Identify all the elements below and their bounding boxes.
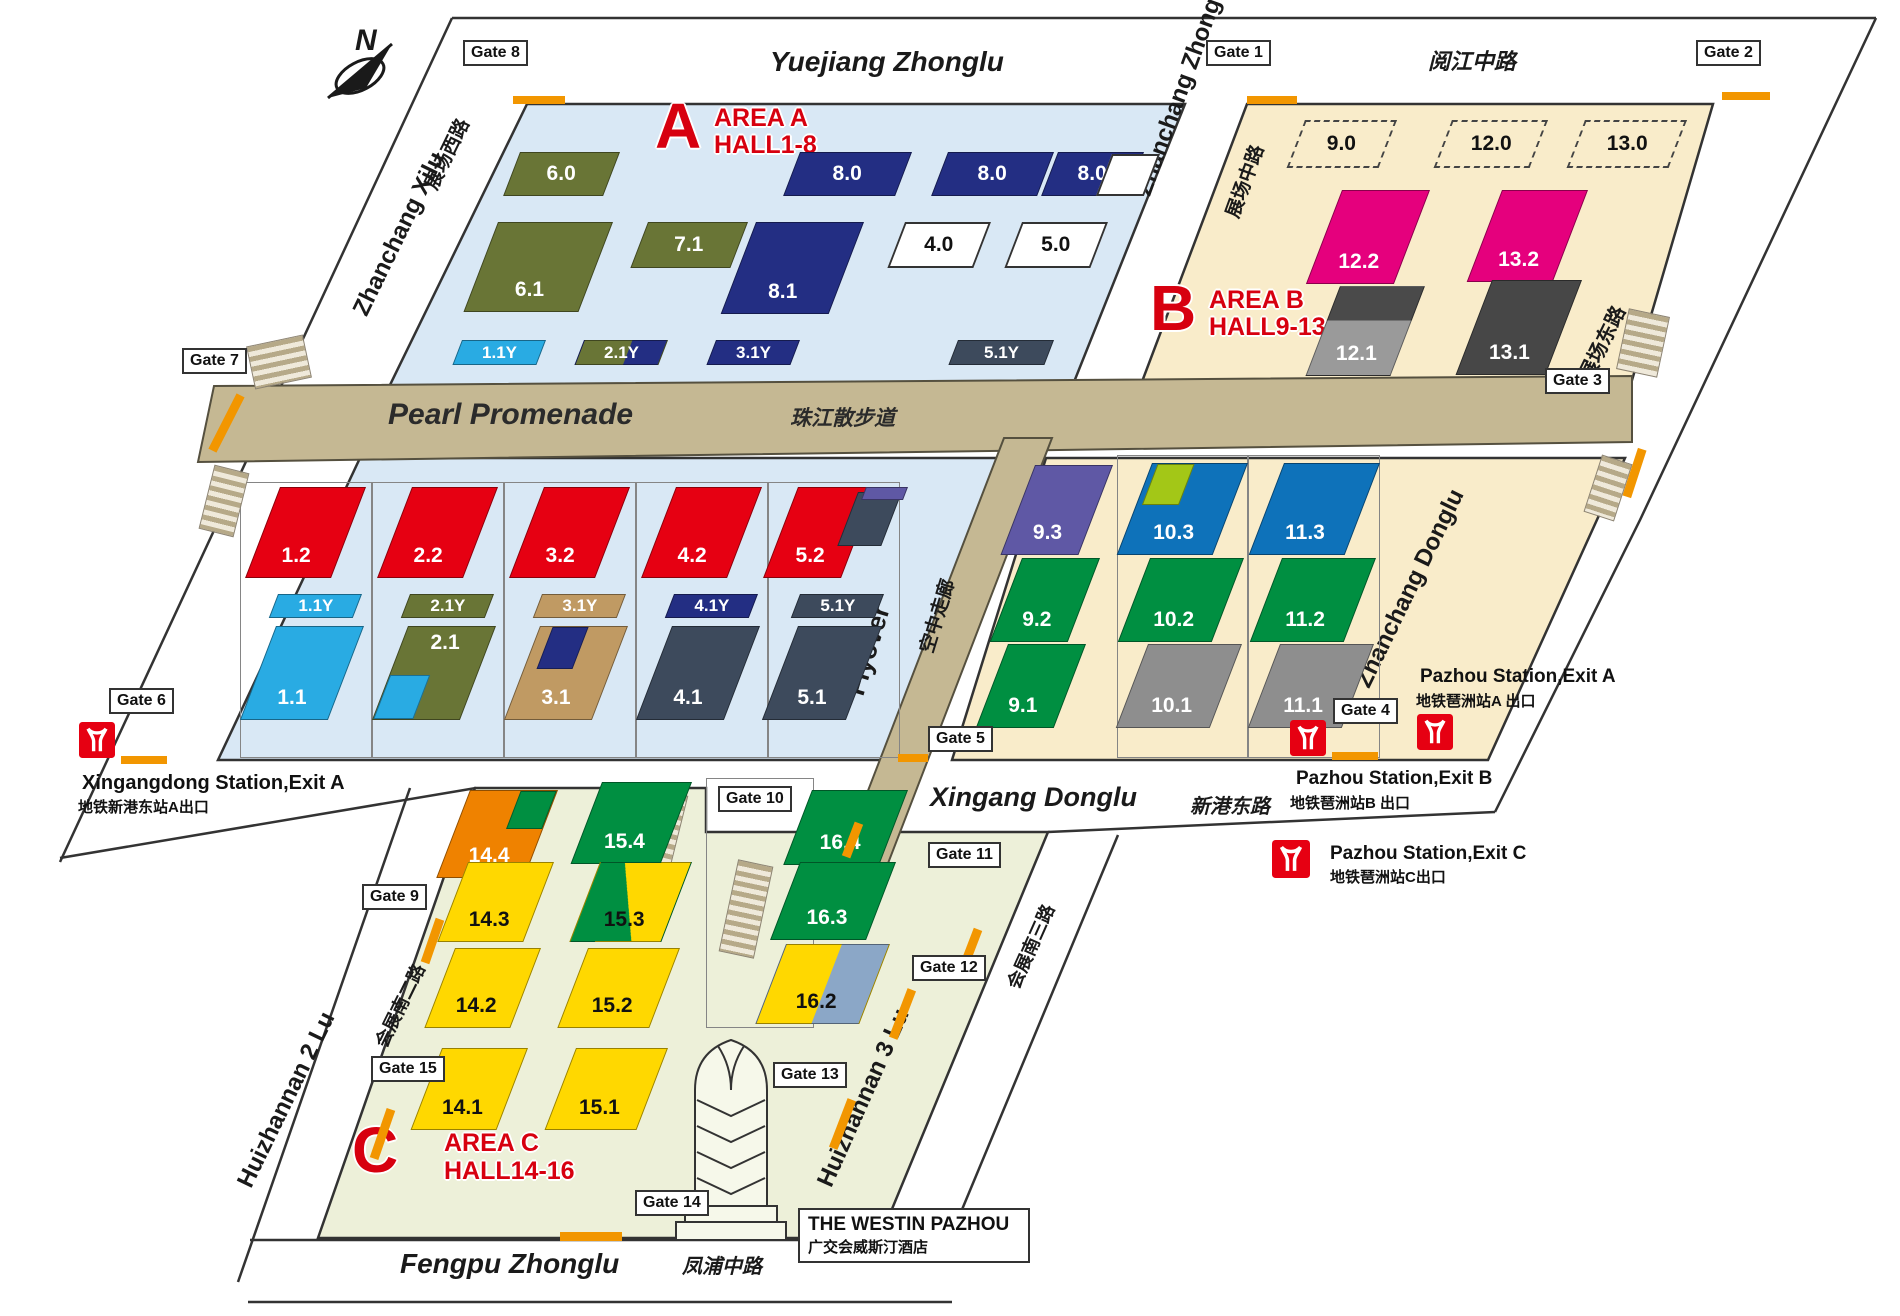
hall-3.1-label: 3.1	[542, 686, 571, 710]
gate-6-label: Gate 6	[117, 692, 166, 710]
gate-13-callout[interactable]: Gate 13	[773, 1062, 847, 1088]
gate-10-callout[interactable]: Gate 10	[718, 786, 792, 812]
hall-8.0-label: 8.0	[978, 162, 1007, 186]
hall-1.1Y-label: 1.1Y	[298, 596, 333, 616]
westin-hotel-callout[interactable]: THE WESTIN PAZHOU 广交会威斯汀酒店	[798, 1208, 1030, 1263]
hall-8.1-label: 8.1	[769, 280, 798, 304]
westin-hotel-name-zh: 广交会威斯汀酒店	[808, 1236, 1020, 1257]
hall-15.2-label: 15.2	[591, 994, 632, 1018]
hall-12.0[interactable]: 12.0	[1434, 120, 1548, 168]
hall-11.2-label: 11.2	[1285, 608, 1325, 632]
hall-16.2-label: 16.2	[795, 990, 836, 1014]
hall-5.1-label: 5.1	[798, 686, 827, 710]
hall-16.3-label: 16.3	[806, 906, 847, 930]
hall-10.2-label: 10.2	[1153, 608, 1194, 632]
gate-15-label: Gate 15	[379, 1060, 437, 1078]
hall-2.1-label: 2.1	[431, 631, 460, 655]
hall-1.1Y-label: 1.1Y	[482, 343, 517, 363]
promenade-label-zh: 珠江散步道	[790, 402, 895, 432]
hall-4.1Y-label: 4.1Y	[694, 596, 729, 616]
hall-3.1Y-label: 3.1Y	[562, 596, 597, 616]
hall-15.4-label: 15.4	[604, 830, 645, 854]
gate-1-callout[interactable]: Gate 1	[1206, 40, 1271, 66]
metro-icon-xingangdong-exit-a[interactable]	[79, 722, 115, 763]
hall-6.0-label: 6.0	[547, 162, 576, 186]
gate-14-callout[interactable]: Gate 14	[635, 1190, 709, 1216]
promenade-label: Pearl Promenade	[388, 398, 633, 432]
gate-4-marker[interactable]	[1332, 752, 1378, 760]
gate-9-label: Gate 9	[370, 888, 419, 906]
hall-9.2-label: 9.2	[1023, 608, 1052, 632]
hall-15.3-label: 15.3	[603, 908, 644, 932]
gate-1-label: Gate 1	[1214, 44, 1263, 62]
gate-5-label: Gate 5	[936, 730, 985, 748]
pazhou-exit-b-label: Pazhou Station,Exit B	[1296, 768, 1492, 790]
compass-north-label: N	[355, 24, 377, 58]
gate-1-marker[interactable]	[1247, 96, 1297, 104]
metro-icon-pazhou-exit-a[interactable]	[1417, 714, 1453, 755]
gate-6-callout[interactable]: Gate 6	[109, 688, 174, 714]
pazhou-exit-a-label: Pazhou Station,Exit A	[1420, 666, 1616, 688]
gate-3-callout[interactable]: Gate 3	[1545, 368, 1610, 394]
canton-fair-complex-map: N Yuejiang Zhonglu 阅江中路 Zhanchang Xilu 展…	[0, 0, 1900, 1316]
pazhou-exit-c-label: Pazhou Station,Exit C	[1330, 843, 1526, 865]
area-a-line1: AREA A	[714, 105, 808, 132]
area-b-line2: HALL9-13	[1209, 314, 1326, 341]
hall-5.1Y-label: 5.1Y	[820, 596, 855, 616]
area-c-line2: HALL14-16	[444, 1158, 575, 1185]
pazhou-exit-a-label-zh: 地铁琶洲站A 出口	[1416, 690, 1535, 711]
gate-11-callout[interactable]: Gate 11	[928, 842, 1001, 868]
hall-5.2-purple-piece	[861, 487, 908, 500]
gate-14-marker[interactable]	[560, 1232, 622, 1241]
hall-11.1-label: 11.1	[1283, 694, 1323, 718]
pazhou-exit-b-label-zh: 地铁琶洲站B 出口	[1290, 792, 1410, 813]
hall-12.2-label: 12.2	[1338, 250, 1379, 274]
road-fengpu-zhonglu: Fengpu Zhonglu	[400, 1248, 619, 1280]
hall-1.2-label: 1.2	[282, 544, 311, 568]
hall-9.3-label: 9.3	[1033, 521, 1062, 545]
metro-icon-pazhou-exit-c[interactable]	[1272, 840, 1310, 883]
hall-15.1-label: 15.1	[579, 1096, 620, 1120]
gate-13-label: Gate 13	[781, 1066, 839, 1084]
hall-3.2-label: 3.2	[546, 544, 575, 568]
hall-3.1-navy-piece	[536, 627, 588, 669]
gate-4-label: Gate 4	[1341, 702, 1390, 720]
hall-2.1Y-label: 2.1Y	[430, 596, 465, 616]
road-xingang-donglu: Xingang Donglu	[930, 782, 1137, 813]
hall-12.0-label: 12.0	[1470, 132, 1511, 156]
gate-15-callout[interactable]: Gate 15	[371, 1056, 445, 1082]
hall-8.0-label: 8.0	[833, 162, 862, 186]
pazhou-exit-c-label-zh: 地铁琶洲站C出口	[1330, 866, 1446, 887]
westin-hotel-name: THE WESTIN PAZHOU	[808, 1214, 1020, 1236]
gate-6-marker[interactable]	[121, 756, 167, 764]
xingangdong-station-label: Xingangdong Station,Exit A	[82, 772, 345, 795]
gate-14-label: Gate 14	[643, 1194, 701, 1212]
gate-2-marker[interactable]	[1722, 92, 1770, 100]
gate-12-label: Gate 12	[920, 959, 978, 977]
xingangdong-station-label-zh: 地铁新港东站A出口	[78, 796, 209, 817]
metro-icon-pazhou-exit-b[interactable]	[1290, 720, 1326, 761]
hall-13.1-label: 13.1	[1489, 341, 1530, 365]
hall-10.1-label: 10.1	[1151, 694, 1192, 718]
hall-13.0[interactable]: 13.0	[1567, 120, 1687, 168]
gate-2-label: Gate 2	[1704, 44, 1753, 62]
hall-5.0[interactable]: 5.0	[1004, 222, 1108, 268]
area-b-letter: B	[1150, 280, 1196, 338]
hall-4.0-label: 4.0	[925, 233, 954, 257]
road-yuejiang-zhonglu: Yuejiang Zhonglu	[770, 46, 1004, 78]
hall-5.2-label: 5.2	[796, 544, 825, 568]
hall-1.1-label: 1.1	[278, 686, 307, 710]
hall-13.2-label: 13.2	[1498, 248, 1539, 272]
hall-8.0-west[interactable]: 8.0	[783, 152, 912, 196]
hall-2.2-label: 2.2	[414, 544, 443, 568]
hall-4.1-label: 4.1	[674, 686, 703, 710]
hall-8.0-mid[interactable]: 8.0	[931, 152, 1054, 196]
gate-5-marker[interactable]	[898, 754, 928, 762]
area-c-line1: AREA C	[444, 1130, 539, 1157]
hall-4.1Y[interactable]: 4.1Y	[665, 594, 758, 618]
hall-3.1Y-label: 3.1Y	[736, 343, 771, 363]
hall-9.0[interactable]: 9.0	[1287, 120, 1397, 168]
hall-11.3-label: 11.3	[1285, 521, 1325, 545]
gate-8-marker[interactable]	[513, 96, 565, 104]
hall-5.1Y-upper[interactable]: 5.1Y	[948, 340, 1054, 365]
hall-6.0[interactable]: 6.0	[503, 152, 620, 196]
hall-1.1Y-lower[interactable]: 1.1Y	[269, 594, 362, 618]
hall-14.2-label: 14.2	[455, 994, 496, 1018]
area-a-letter: A	[655, 98, 701, 156]
gate-8-callout[interactable]: Gate 8	[463, 40, 528, 66]
hall-5.1Y-label: 5.1Y	[984, 343, 1019, 363]
hall-9.0-label: 9.0	[1327, 132, 1356, 156]
hall-10.3-label: 10.3	[1153, 521, 1194, 545]
hall-3.1Y-lower[interactable]: 3.1Y	[533, 594, 626, 618]
hall-10.3-yellowgreen-piece	[1141, 464, 1194, 505]
gate-10-label: Gate 10	[726, 790, 784, 808]
hall-7.1-label: 7.1	[675, 233, 704, 257]
hall-5.1Y-lower[interactable]: 5.1Y	[791, 594, 884, 618]
hall-1.1Y-upper[interactable]: 1.1Y	[452, 340, 546, 365]
gate-5-callout[interactable]: Gate 5	[928, 726, 993, 752]
hall-4.0[interactable]: 4.0	[887, 222, 991, 268]
road-fengpu-zhonglu-zh: 凤浦中路	[682, 1250, 762, 1279]
gate-3-label: Gate 3	[1553, 372, 1602, 390]
hall-4.2-label: 4.2	[678, 544, 707, 568]
hall-5.0-label: 5.0	[1042, 233, 1071, 257]
gate-9-callout[interactable]: Gate 9	[362, 884, 427, 910]
area-b-line1: AREA B	[1209, 287, 1304, 314]
gate-4-callout[interactable]: Gate 4	[1333, 698, 1398, 724]
hall-13.0-label: 13.0	[1606, 132, 1647, 156]
hall-14.3-label: 14.3	[468, 908, 509, 932]
hall-2.1Y-upper[interactable]: 2.1Y	[574, 340, 668, 365]
gate-7-label: Gate 7	[190, 352, 239, 370]
hall-7.1[interactable]: 7.1	[630, 222, 748, 268]
hall-14.1-label: 14.1	[442, 1096, 483, 1120]
hall-2.1Y-label: 2.1Y	[604, 343, 639, 363]
hall-6.1-label: 6.1	[515, 278, 544, 302]
gate-8-label: Gate 8	[471, 44, 520, 62]
road-yuejiang-zhonglu-zh: 阅江中路	[1428, 44, 1516, 76]
gate-2-callout[interactable]: Gate 2	[1696, 40, 1761, 66]
gate-12-callout[interactable]: Gate 12	[912, 955, 986, 981]
gate-11-label: Gate 11	[936, 846, 993, 864]
road-xingang-donglu-zh: 新港东路	[1190, 790, 1270, 819]
hall-3.1Y-upper[interactable]: 3.1Y	[706, 340, 800, 365]
hall-2.1Y-lower[interactable]: 2.1Y	[401, 594, 494, 618]
gate-7-callout[interactable]: Gate 7	[182, 348, 247, 374]
hall-9.1-label: 9.1	[1009, 694, 1038, 718]
hall-12.1-label: 12.1	[1336, 342, 1377, 366]
